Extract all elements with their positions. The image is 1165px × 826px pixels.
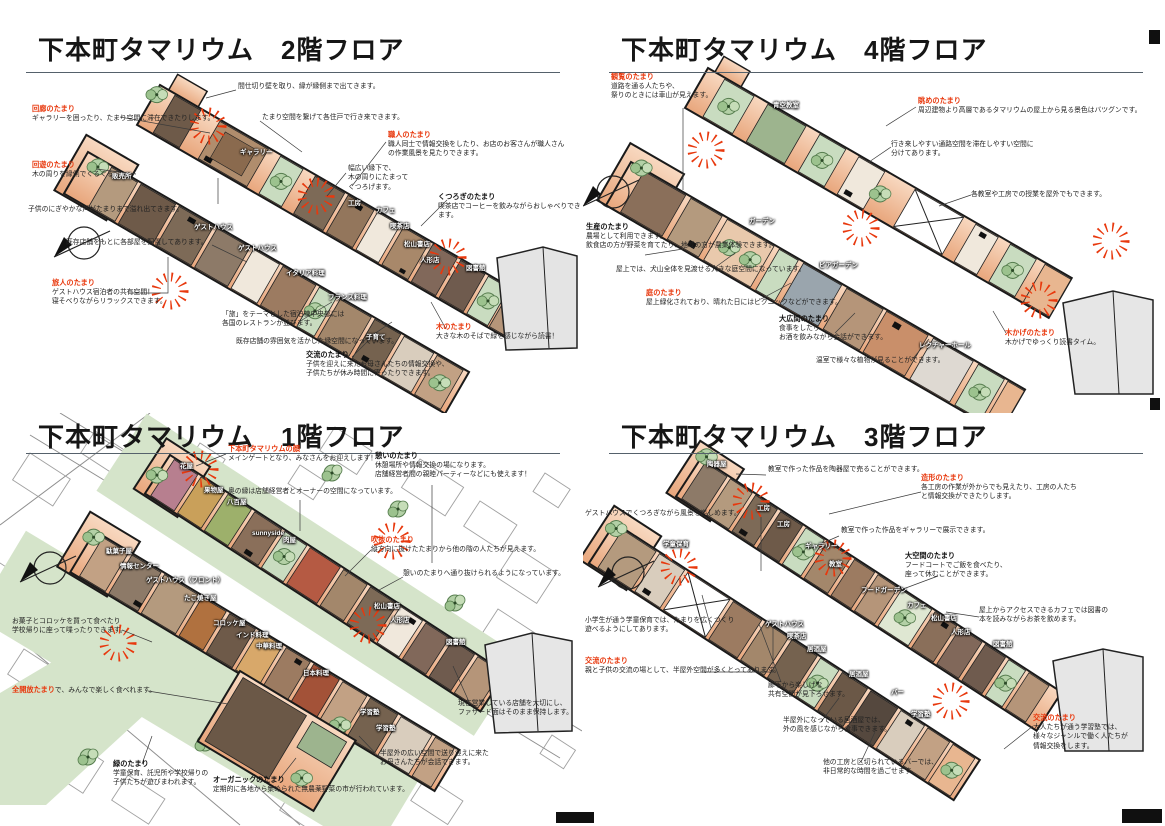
tamari-annotation: 観覧のたまり道路を通る人たちや、 祭りのときには車山が見えます。: [611, 72, 712, 101]
tree-icon: [445, 595, 465, 611]
tamari-annotation: 交流のたまり親と子供の交流の場として、半屋外空間が多くとってあります。: [585, 656, 780, 675]
room-label: 喫茶店: [787, 630, 807, 640]
tamari-annotation: 交流のたまり大人たちが通う学習塾では、 様々なジャンルで働く人たちが 情報交換を…: [1033, 713, 1128, 751]
annotation-note: 小学生が通う学童保育では、たまりを広くつくり 遊べるようにしてあります。: [585, 616, 734, 635]
tamari-annotation: 吹抜のたまり縦方向に抜けたたまりから他の階の人たちが見えます。: [371, 535, 540, 554]
room-label: 居酒屋: [807, 643, 827, 653]
room-label: ゲストハウス（フロント）: [146, 574, 224, 584]
tamari-annotation: 憩いのたまり休憩場所や情報交換の場になります。 店舗経営者間の親睦パーティーなど…: [375, 451, 531, 480]
room-label: 図書館: [446, 636, 466, 646]
room-label: 松山書店: [404, 238, 430, 248]
annotation-note: 半屋外の広い空間で送り迎えに来た お母さんたちが会話できます。: [380, 749, 489, 768]
annotation-note: 子供のにぎやかな声がたまりまで溢れ出てきます。: [28, 205, 183, 214]
quadrant-floor-1: 下本町タマリウム 1階フロア 下本町タマリウムの顔メインゲートとなり、みなさんを…: [0, 413, 582, 826]
poster-page: { "palette": { "accent_red": "#e8380d", …: [0, 0, 1165, 826]
room-label: カフェ: [376, 204, 396, 214]
tamari-annotation: 大広間のたまり食事をしたり、 お酒を飲みながら会話ができます。: [779, 314, 887, 343]
tree-icon: [388, 501, 408, 517]
annotation-note: 各教室や工房での授業を屋外でもできます。: [971, 190, 1106, 199]
annotation-note: 半屋外になっている居酒屋では、 外の風を感じながら食事できます。: [783, 716, 891, 735]
annotation-note: 現在営業している店舗を大切にし、 ファサード面はそのまま保持します。: [458, 699, 573, 718]
annotation-note: 廊下から楽しげな 共有空間が見下ろせます。: [768, 681, 849, 700]
room-label: 図書館: [466, 262, 486, 272]
room-label: 学習塾: [376, 722, 396, 732]
annotation-note: 教室で作った作品をギャラリーで展示できます。: [841, 526, 989, 535]
room-label: 人形店: [390, 614, 410, 624]
annotation-note: 奥の縁は店舗経営者とオーナーの空間になっています。: [228, 487, 397, 496]
room-label: ガーデン: [749, 215, 775, 225]
room-label: ビアガーデン: [819, 259, 858, 269]
room-label: カフェ: [907, 599, 927, 609]
tamari-annotation: くつろぎのたまり喫茶店でコーヒーを飲みながらおしゃべりできます。: [438, 192, 582, 221]
room-label: フランス料理: [328, 291, 367, 301]
room-label: 工房: [348, 197, 361, 207]
tamari-annotation: 職人のたまり職人同士で情報交換をしたり、お店のお客さんが職人さん の作業風景を見…: [388, 130, 564, 159]
annotation-note: 他の工房と区切られているバーでは、 非日常的な時間を過ごせます。: [823, 758, 938, 777]
room-label: イタリア料理: [286, 267, 325, 277]
annotation-note: ゲストハウスでくつろぎながら風景を楽しめます。: [585, 509, 741, 518]
tamari-annotation: 緑のたまり学童保育、託児所や学校帰りの 子供たちが遊びまわれます。: [113, 759, 208, 788]
title-rule: [26, 72, 560, 73]
tamari-annotation: 全開放たまりで、みんなで楽しく食べれます。: [12, 685, 156, 695]
room-label: 情報センター: [120, 560, 159, 570]
annotation-note: お菓子とコロッケを買って食べたり 学校帰りに座って喋ったりできます。: [12, 617, 127, 636]
room-label: 居酒屋: [849, 668, 869, 678]
room-label: フードガーデン: [861, 584, 907, 594]
tamari-annotation: 木かげのたまり木かげでゆっくり読書タイム。: [1005, 328, 1100, 347]
annotation-note: 温室で様々な植物が見ることができます。: [816, 356, 944, 365]
title-rule: [609, 453, 1143, 454]
tamari-annotation: 交流のたまり子供を迎えに来たお母さんたちの情報交換や、 子供たちが休み時間に寄っ…: [306, 350, 449, 379]
room-label: 人形店: [951, 626, 971, 636]
room-label: たこ焼き屋: [184, 592, 217, 602]
room-label: 中華料理: [256, 640, 282, 650]
registration-mark: [1122, 809, 1162, 823]
tamari-annotation: 大空間のたまりフードコートでご飯を食べたり、 座って休むことができます。: [905, 551, 1007, 580]
room-label: レクチャーホール: [919, 339, 971, 349]
annotation-note: 教室で作った作品を陶器屋で売ることができます。: [768, 465, 924, 474]
tamari-annotation: 回遊のたまり木の周りを縁側でぐるぐる: [32, 160, 113, 179]
room-label: 駄菓子屋: [106, 545, 132, 555]
room-label: 果物屋: [204, 484, 224, 494]
floor-title-4f: 下本町タマリウム 4階フロア: [621, 30, 987, 67]
room-label: 喫茶店: [390, 220, 410, 230]
floor-title-2f: 下本町タマリウム 2階フロア: [38, 30, 404, 67]
annotation-note: 行き来しやすい通路空間を滞在しやすい空間に 分けてあります。: [891, 140, 1034, 159]
room-label: 学習塾: [911, 708, 931, 718]
annotation-note: 既存店舗をもとに各部屋を配置してあります。: [66, 238, 208, 247]
annotation-note: 幅広い縁下で、 木の周りにたまって くつろげます。: [348, 164, 408, 192]
registration-mark: [1149, 30, 1160, 44]
tamari-annotation: 生産のたまり農場として利用できます。 飲食店の方が野菜を育てたり、地域の方が農業…: [586, 222, 775, 251]
room-label: 松山書店: [931, 612, 957, 622]
registration-mark: [1150, 398, 1160, 410]
room-label: 学童保育: [663, 538, 689, 548]
room-label: 学習塾: [360, 706, 380, 716]
room-label: インド料理: [236, 629, 269, 639]
room-label: ギャラリー: [805, 540, 838, 550]
room-label: 青空教室: [773, 99, 799, 109]
annotation-note: 間仕切り壁を取り、縁が縁側まで出てきます。: [238, 82, 380, 91]
room-label: バー: [891, 686, 904, 696]
tamari-annotation: オーガニックのたまり定期的に各地から集められた無農薬野菜の市が行われています。: [213, 775, 409, 794]
tamari-annotation: 木のたまり大きな木のそばで緑を感じながら読書！: [436, 322, 558, 341]
room-label: 販売所: [112, 170, 132, 180]
tamari-annotation: 庭のたまり屋上緑化されており、晴れた日にはピクニックなどができます。: [646, 288, 842, 307]
room-label: ギャラリー: [240, 146, 273, 156]
quadrant-floor-4: 下本町タマリウム 4階フロア 観覧のたまり道路を通る人たちや、 祭りのときには車…: [583, 0, 1165, 413]
tamari-burst-icon: [847, 214, 875, 242]
room-label: 工房: [777, 518, 790, 528]
quadrant-floor-2: 下本町タマリウム 2階フロア 間仕切り壁を取り、縁が縁側まで出てきます。 回廊の…: [0, 0, 582, 413]
room-label: 教室: [829, 558, 842, 568]
room-label: 花屋: [180, 460, 193, 470]
tamari-annotation: 回廊のたまりギャラリーを囲ったり、たまり空間に滞在できたりします。: [32, 104, 214, 123]
room-label: ゲストハウス: [194, 221, 233, 231]
room-label: sunnyside: [252, 530, 284, 537]
room-label: 子育て: [366, 331, 386, 341]
room-label: コロッケ屋: [213, 617, 246, 627]
registration-mark: [556, 812, 594, 823]
annotation-note: 憩いのたまりへ通り抜けられるようになっています。: [403, 569, 565, 578]
room-label: 図書館: [993, 638, 1013, 648]
tamari-annotation: 旅人のたまりゲストハウス宿泊者の共有空間！ 寝そべりながらリラックスできます。: [52, 278, 167, 307]
room-label: ゲストハウス: [765, 618, 804, 628]
annotation-note: たまり空間を繋げて各住戸で行き来できます。: [262, 113, 404, 122]
floor-title-3f: 下本町タマリウム 3階フロア: [621, 417, 987, 454]
room-label: 工房: [757, 502, 770, 512]
room-label: 肉屋: [283, 534, 296, 544]
room-label: 陶器屋: [707, 458, 727, 468]
tamari-burst-icon: [937, 687, 965, 715]
room-label: 人形店: [420, 254, 440, 264]
tamari-burst-icon: [692, 136, 720, 164]
tamari-annotation: 下本町タマリウムの顔メインゲートとなり、みなさんをお迎えします！: [228, 444, 377, 463]
room-label: 日本料理: [303, 667, 329, 677]
tamari-burst-icon: [1097, 227, 1125, 255]
roof-shape: [485, 633, 572, 733]
tree-icon: [322, 465, 342, 481]
room-label: ゲストハウス: [238, 242, 277, 252]
annotation-note: 屋上からアクセスできるカフェでは図書の 本を読みながらお茶を飲めます。: [979, 606, 1108, 625]
annotation-note: 屋上では、犬山全体を見渡せる大きな庭空間になっています。: [616, 265, 805, 274]
annotation-note: 「旅」をテーマとした宿泊棟中央部には 各国のレストランが並びます。: [222, 310, 344, 329]
quadrant-floor-3: 下本町タマリウム 3階フロア 教室で作った作品を陶器屋で売ることができます。 造…: [583, 413, 1165, 826]
room-label: 八百屋: [227, 496, 247, 506]
tamari-annotation: 眺めのたまり周辺建物より高層であるタマリウムの屋上から見る景色はバツグンです。: [918, 96, 1141, 115]
room-label: 松山書店: [374, 600, 400, 610]
tamari-annotation: 造形のたまり各工房の作業が外からでも見えたり、工房の人たち と情報交換ができたり…: [921, 473, 1077, 502]
